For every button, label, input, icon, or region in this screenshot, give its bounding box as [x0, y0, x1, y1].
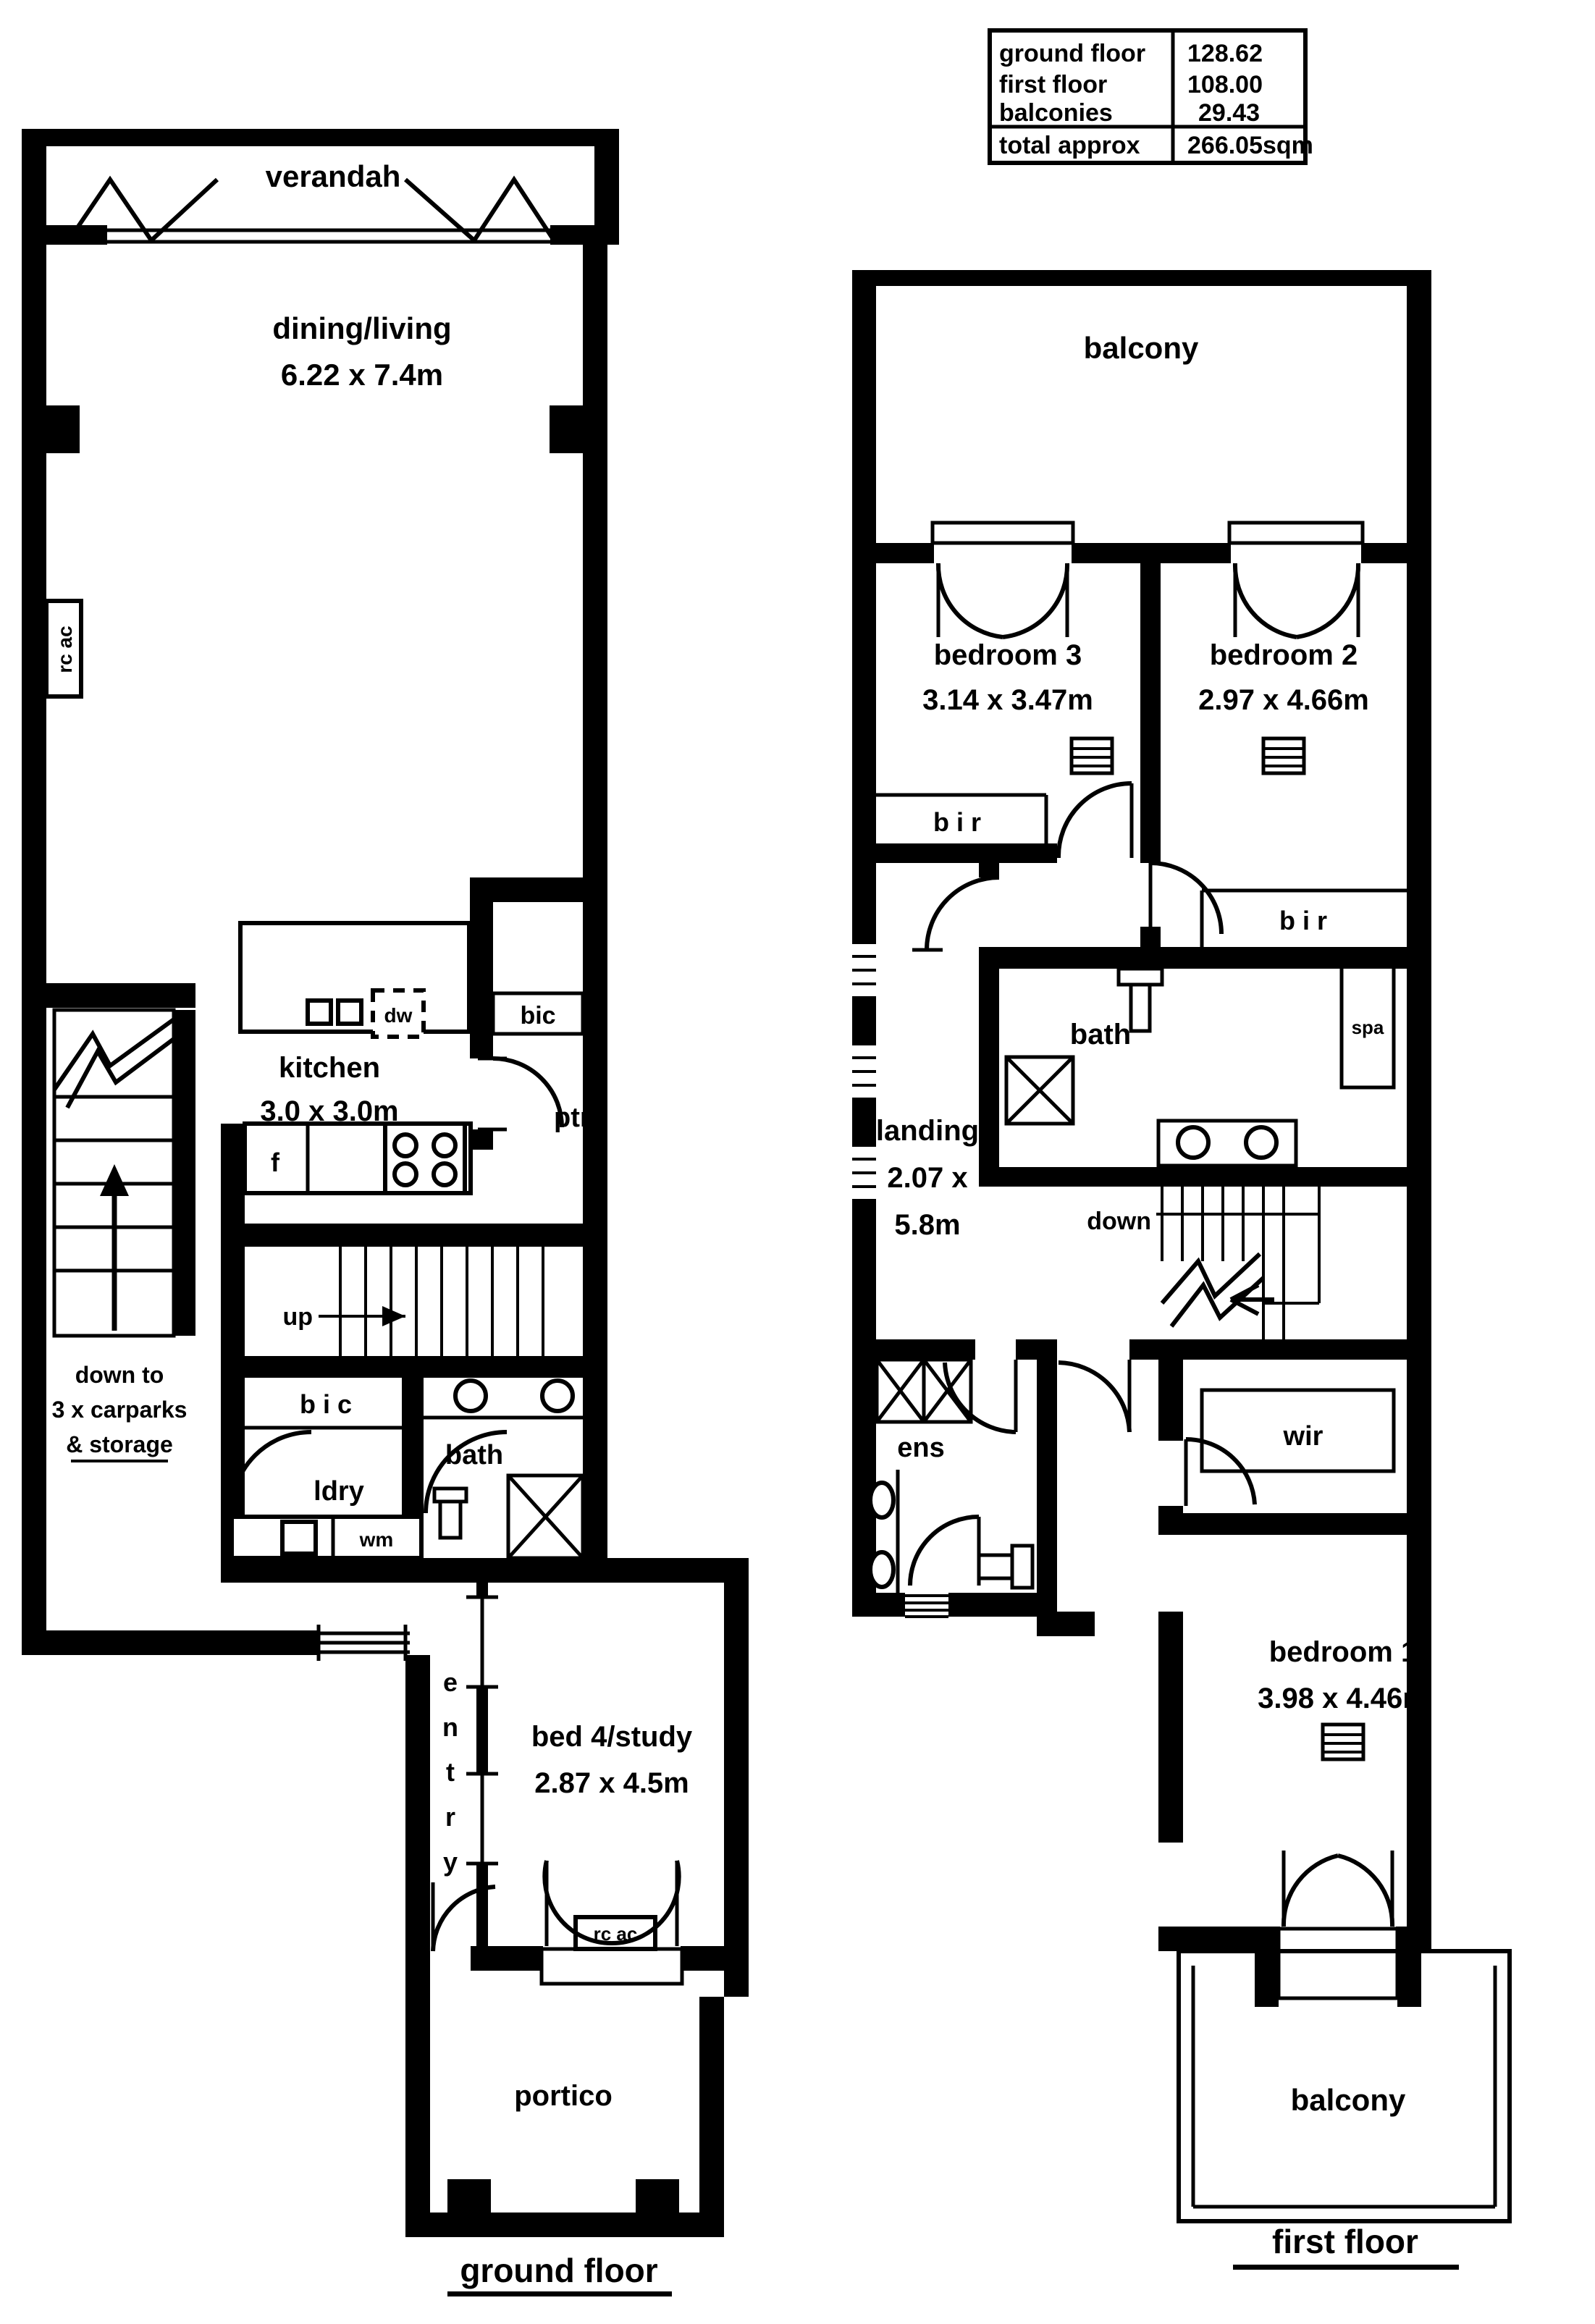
room-dims-landing-2: 5.8m — [894, 1209, 960, 1241]
rc-ac-label: rc ac — [54, 626, 76, 673]
stairs-down-to-carpark: down to 3 x carparks & storage — [52, 1010, 188, 1461]
room-label-verandah: verandah — [266, 159, 401, 193]
carpark-note-1: down to — [75, 1362, 164, 1388]
wir-label: wir — [1283, 1421, 1323, 1452]
french-doors-icon — [1229, 523, 1363, 637]
vent-hatch-icon — [1323, 1725, 1363, 1759]
bedroom2-door-arc — [1150, 863, 1221, 935]
caption-ground-floor: ground floor — [460, 2252, 657, 2289]
dw-label: dw — [384, 1004, 413, 1027]
carpark-note-2: 3 x carparks — [52, 1397, 188, 1423]
bic-lower-closet: b i c — [232, 1378, 420, 1428]
table-row-label: first floor — [999, 71, 1107, 98]
room-dims-landing-1: 2.07 x — [887, 1162, 967, 1194]
room-dims-dining: 6.22 x 7.4m — [281, 358, 443, 392]
bic-lower-label: b i c — [300, 1389, 352, 1419]
bath-label: bath — [1070, 1019, 1131, 1051]
french-doors-icon — [1279, 1851, 1397, 1998]
room-label-landing: landing — [876, 1115, 979, 1147]
ptry-label: ptry — [554, 1103, 606, 1133]
basin-icon — [455, 1381, 486, 1411]
room-label-bed4: bed 4/study — [531, 1721, 693, 1753]
vent-hatch-icon — [1263, 738, 1304, 773]
room-label-bedroom3: bedroom 3 — [934, 639, 1082, 671]
shower-icon — [508, 1475, 583, 1558]
table-row-label: ground floor — [999, 40, 1145, 67]
ldry-label: ldry — [313, 1476, 364, 1507]
room-dims-bedroom2: 2.97 x 4.66m — [1198, 684, 1369, 716]
ens-inner-door-arc — [910, 1517, 979, 1586]
vanity-icon — [1158, 1121, 1296, 1166]
first-floor-plan: balcony bedroom 3 3.14 x 3.47m b i r — [852, 270, 1510, 2270]
wm-label: wm — [359, 1528, 394, 1551]
table-row-value: 266.05sqm — [1187, 132, 1313, 159]
stairs-up: up — [282, 1247, 543, 1356]
room-label-portico: portico — [514, 2080, 613, 2112]
bic-upper-closet: bic — [493, 993, 583, 1034]
basin-icon — [542, 1381, 573, 1411]
room-dims-bed4: 2.87 x 4.5m — [534, 1767, 689, 1799]
entry-label: entry — [442, 1667, 458, 1877]
laundry-tub-icon — [282, 1522, 316, 1554]
table-row-label: total approx — [999, 132, 1140, 159]
room-label-dining: dining/living — [272, 311, 451, 345]
table-row-label: balconies — [999, 99, 1113, 127]
room-dims-bedroom1: 3.98 x 4.46m — [1258, 1683, 1428, 1714]
kitchen-bench: f — [245, 1124, 471, 1193]
bir-bed2-label: b i r — [1279, 906, 1327, 935]
up-label: up — [282, 1303, 313, 1331]
window-icon — [852, 941, 876, 1202]
caption-first-floor: first floor — [1272, 2223, 1418, 2260]
bath-label: bath — [445, 1440, 503, 1470]
hall-door-arc — [1059, 1363, 1129, 1432]
window-icon — [314, 1625, 410, 1661]
bath-door-arc — [927, 877, 999, 950]
carpark-note-3: & storage — [66, 1431, 173, 1457]
stairs-down: down — [1087, 1178, 1319, 1339]
bedroom3-door-arc — [1059, 783, 1132, 858]
bir-bed3-closet: b i r — [876, 795, 1046, 843]
rc-ac-unit: rc ac — [46, 601, 81, 696]
table-row-value: 108.00 — [1187, 71, 1263, 98]
up-direction-arrow-icon — [382, 1306, 405, 1326]
room-label-bedroom1: bedroom 1 — [1269, 1636, 1417, 1668]
ground-floor-plan: verandah dining/living 6.22 x 7.4m rc ac… — [22, 129, 749, 2296]
shower-icon — [1006, 1057, 1073, 1124]
table-row-value: 128.62 — [1187, 40, 1263, 67]
spa-label: spa — [1352, 1016, 1384, 1038]
ensuite: ens — [870, 1360, 1129, 1617]
pantry-door-arc — [478, 1058, 562, 1129]
french-doors-icon — [933, 523, 1073, 637]
spa-icon: spa — [1342, 963, 1394, 1087]
window-icon — [905, 1593, 948, 1617]
area-table: ground floor 128.62 first floor 108.00 b… — [990, 30, 1313, 163]
wir: wir — [1186, 1390, 1394, 1506]
fridge-label: f — [271, 1148, 280, 1177]
ens-label: ens — [897, 1433, 944, 1463]
table-row-value: 29.43 — [1198, 99, 1260, 127]
bir-bed2-closet: b i r — [1202, 891, 1407, 947]
toilet-icon — [434, 1489, 466, 1538]
bic-upper-label: bic — [520, 1002, 555, 1030]
room-label-balcony-bottom: balcony — [1291, 2083, 1406, 2117]
bir-bed3-label: b i r — [933, 807, 981, 837]
entry: entry — [433, 1597, 498, 1951]
room-dims-bedroom3: 3.14 x 3.47m — [922, 684, 1093, 716]
vent-hatch-icon — [1072, 738, 1112, 773]
kitchen-island: dw — [240, 923, 469, 1037]
room-label-bedroom2: bedroom 2 — [1210, 639, 1358, 671]
laundry: ldry wm — [232, 1432, 421, 1558]
room-label-kitchen: kitchen — [279, 1052, 380, 1084]
down-label: down — [1087, 1208, 1151, 1235]
ground-bath: bath — [424, 1381, 583, 1558]
floorplan-page: ground floor 128.62 first floor 108.00 b… — [0, 0, 1595, 2324]
toilet-icon — [979, 1546, 1032, 1588]
floorplan-drawing: ground floor 128.62 first floor 108.00 b… — [0, 0, 1595, 2324]
room-label-balcony-top: balcony — [1084, 331, 1199, 365]
shower-icon — [877, 1360, 971, 1422]
